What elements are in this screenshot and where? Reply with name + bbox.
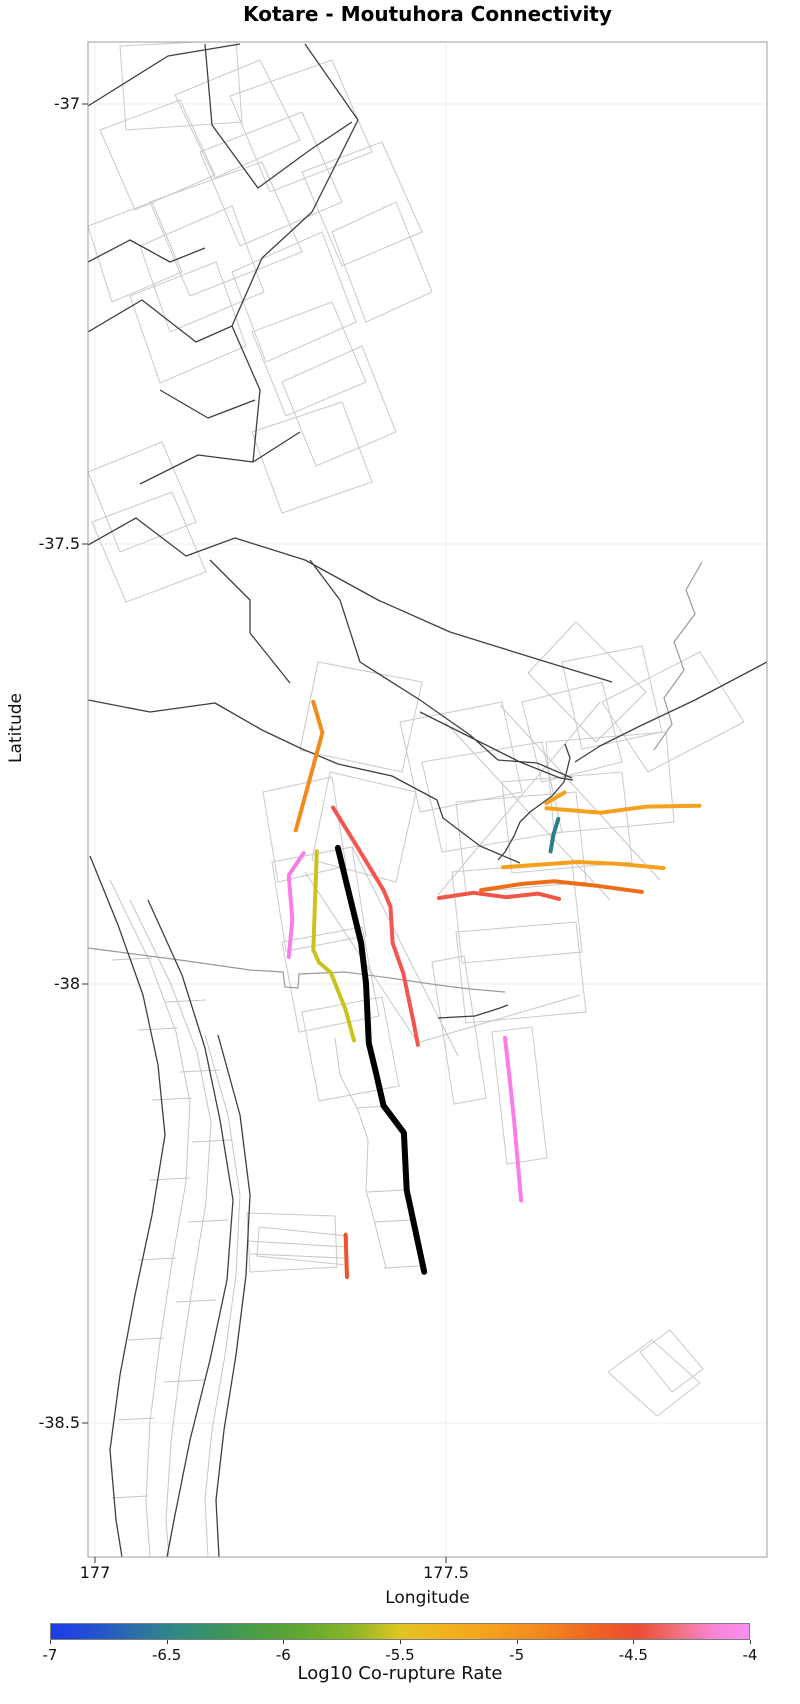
fault-edge-light: [112, 958, 152, 960]
fault-trace-dark: [210, 560, 290, 683]
fault-edge-light: [150, 1178, 190, 1180]
x-tick-label: 177: [55, 1563, 135, 1582]
colorbar-tick-mark: [400, 1640, 401, 1644]
colorbar-tick-mark: [633, 1640, 634, 1644]
fault-patch-outline: [252, 402, 372, 513]
fault-edge-light: [180, 1070, 220, 1072]
fault-patch-outline: [452, 862, 582, 963]
fault-edge-light: [366, 1190, 408, 1192]
fault-edge-light: [130, 900, 211, 1557]
fault-patch-outline: [302, 997, 399, 1101]
fault-edge-light: [188, 1220, 228, 1222]
fault-trace-dark: [88, 518, 612, 682]
fault-edge-light: [164, 1380, 204, 1382]
y-tick-label: -37.5: [0, 534, 80, 553]
fault-patch-outline: [608, 1340, 700, 1416]
fault-edge-light: [420, 995, 580, 1042]
rupture-segment-amber-mid: [503, 862, 664, 868]
y-tick-label: -38: [0, 974, 80, 993]
fault-edge-light: [110, 880, 190, 1557]
fault-edge-light: [192, 1140, 232, 1142]
figure-canvas: Kotare - Moutuhora Connectivity Latitude…: [0, 0, 800, 1704]
fault-patch-outline: [92, 492, 206, 602]
fault-edge-light: [112, 1496, 148, 1498]
rupture-segment-red-mid: [439, 893, 559, 899]
rupture-segment-pink-west: [289, 853, 304, 957]
chart-title: Kotare - Moutuhora Connectivity: [88, 2, 767, 26]
fault-patch-outline: [88, 202, 182, 302]
colorbar-tick-label: -4.5: [603, 1646, 663, 1664]
fault-trace-dark: [310, 560, 360, 662]
x-tick-label: 177.5: [406, 1563, 486, 1582]
colorbar-tick-label: -6: [253, 1646, 313, 1664]
colorbar-tick-label: -5.5: [370, 1646, 430, 1664]
fault-edge-light: [138, 1028, 178, 1030]
coastline: [654, 562, 702, 750]
fault-trace-dark: [90, 856, 165, 1557]
map-layers: [88, 40, 767, 1557]
rupture-segment-black-main: [338, 848, 424, 1272]
fault-edge-light: [152, 1098, 192, 1100]
fault-patch-outline: [546, 732, 674, 833]
fault-edge-light: [166, 1000, 206, 1002]
colorbar-tick-label: -6.5: [137, 1646, 197, 1664]
colorbar-tick-label: -7: [20, 1646, 80, 1664]
rupture-segment-redorange-tick: [346, 1235, 347, 1277]
colorbar-tick-label: -5: [487, 1646, 547, 1664]
coastline: [88, 948, 505, 992]
plot-border: [88, 42, 767, 1557]
fault-edge-light: [138, 1258, 176, 1260]
fault-patch-outline: [230, 60, 372, 192]
fault-patch-outline: [456, 922, 586, 1023]
fault-edge-light: [248, 1241, 346, 1247]
fault-patch-outline: [282, 346, 396, 466]
fault-patch-outline: [100, 100, 215, 210]
x-axis-label: Longitude: [88, 1588, 767, 1608]
fault-patch-outline: [130, 262, 246, 383]
colorbar-tick-mark: [750, 1640, 751, 1644]
fault-edge-light: [205, 1035, 240, 1557]
y-tick-label: -38.5: [0, 1413, 80, 1432]
fault-trace-dark: [420, 712, 573, 780]
fault-edge-light: [250, 1254, 344, 1258]
fault-patch-outline: [252, 302, 366, 416]
fault-patch-outline: [302, 142, 422, 266]
fault-trace-dark: [88, 300, 232, 342]
fault-patch-outline: [422, 742, 562, 852]
colorbar-label: Log10 Co-rupture Rate: [50, 1663, 750, 1684]
fault-trace-dark: [360, 662, 572, 778]
fault-patch-outline: [640, 1330, 703, 1392]
y-tick-label: -37: [0, 94, 80, 113]
colorbar-tick-mark: [167, 1640, 168, 1644]
fault-trace-dark: [88, 44, 240, 106]
fault-edge-light: [374, 1220, 410, 1222]
fault-trace-dark: [160, 390, 255, 418]
fault-trace-dark: [232, 258, 262, 462]
fault-edge-light: [128, 1338, 164, 1340]
rupture-segment-orange-mid: [481, 881, 642, 892]
rupture-segment-teal: [551, 819, 559, 852]
fault-edge-light: [118, 1418, 154, 1420]
map-plot: [0, 0, 800, 1704]
rupture-segment-pink-south: [505, 1038, 521, 1201]
fault-edge-light: [384, 1266, 420, 1268]
rupture-segment-amber-north: [546, 806, 699, 813]
fault-patch-outline: [432, 956, 486, 1104]
colorbar-tick-mark: [283, 1640, 284, 1644]
fault-patch-outline: [232, 232, 356, 362]
colorbar-tick-mark: [517, 1640, 518, 1644]
fault-patch-outline: [502, 772, 632, 873]
colorbar-tick-label: -4: [720, 1646, 780, 1664]
fault-patch-outline: [522, 682, 622, 782]
fault-patch-outline: [312, 772, 416, 882]
colorbar-gradient: [50, 1623, 750, 1640]
colorbar-tick-mark: [50, 1640, 51, 1644]
y-axis-label: Latitude: [6, 693, 26, 763]
fault-trace-dark: [205, 44, 352, 188]
fault-patch-outline: [528, 622, 646, 742]
fault-trace-dark: [140, 432, 300, 484]
rupture-segment-orange-nw: [296, 702, 323, 830]
fault-edge-light: [176, 1300, 216, 1302]
fault-patch-outline: [492, 1027, 547, 1164]
